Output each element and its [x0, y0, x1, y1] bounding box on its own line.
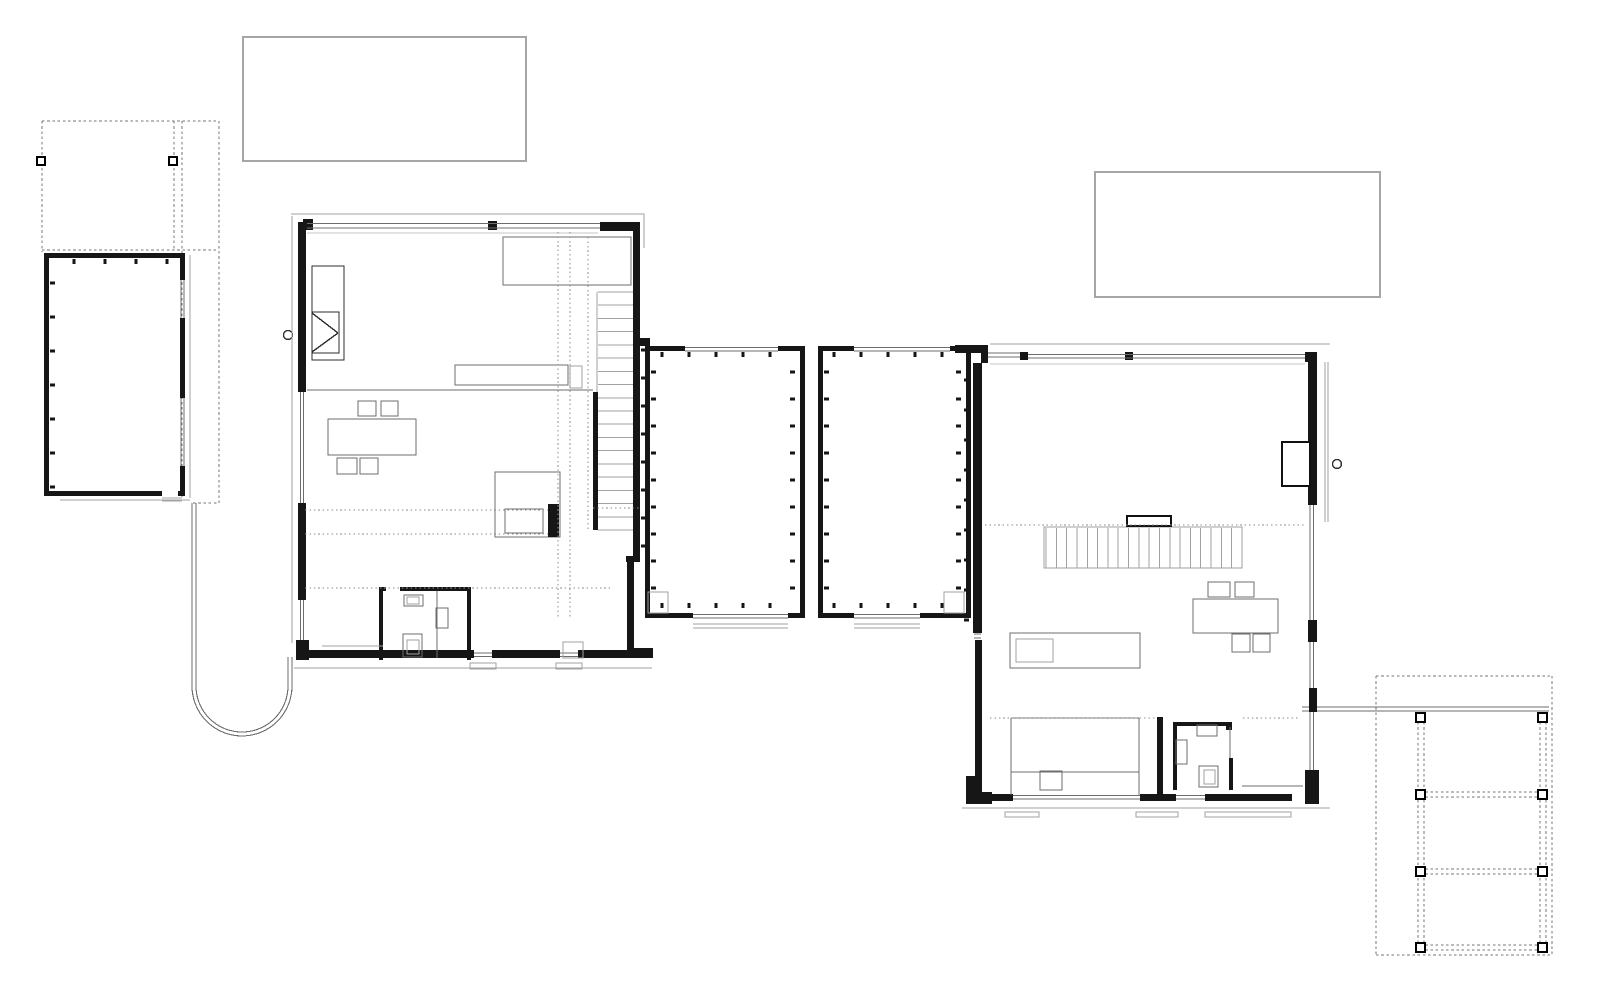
wall-tick — [651, 560, 656, 563]
wall-tick — [769, 352, 772, 357]
basin-icon — [1176, 740, 1187, 764]
wall-tick — [824, 425, 829, 428]
wall-tick — [964, 469, 969, 472]
wall-tick — [651, 587, 656, 590]
wall-tick — [790, 533, 795, 536]
carport-post — [37, 157, 45, 165]
sink-icon — [1016, 639, 1053, 662]
floor-mat — [944, 592, 964, 613]
wall-tick — [688, 352, 691, 357]
wardrobe — [1282, 442, 1310, 486]
wall-tick — [715, 603, 718, 608]
court-room-1 — [645, 346, 805, 628]
wall-tick — [790, 425, 795, 428]
wall-tick — [956, 560, 961, 563]
wall-tick — [790, 506, 795, 509]
dining-set-east — [1193, 582, 1278, 652]
bathroom-west — [379, 587, 471, 660]
curved-passage — [192, 503, 292, 736]
wall-tick — [651, 506, 656, 509]
bed-east-pillow — [1040, 771, 1062, 790]
wall-tick — [914, 352, 917, 357]
floor-plan-page: Ground floor plan — two-wing house with … — [0, 0, 1600, 986]
wall-tick — [166, 259, 169, 264]
door-handle-icon — [284, 331, 293, 340]
wall-tick — [73, 259, 76, 264]
carport-post — [1416, 713, 1425, 722]
wall-tick — [824, 452, 829, 455]
floor-mat — [648, 592, 668, 613]
carport-post — [1416, 867, 1425, 876]
basin-icon — [436, 608, 448, 628]
bedroom-east — [1011, 718, 1139, 795]
wall-tick — [964, 589, 969, 592]
chair — [337, 458, 357, 474]
east-stair — [1044, 516, 1242, 568]
wall-ticks — [50, 259, 969, 622]
wall-tick — [50, 452, 55, 455]
roof-outlines — [243, 37, 1380, 297]
court-room-2 — [818, 346, 971, 628]
desk-area — [495, 472, 560, 537]
wall-tick — [833, 352, 836, 357]
wall-tick — [790, 479, 795, 482]
wall-tick — [790, 587, 795, 590]
bathroom-east — [1173, 722, 1233, 790]
bed-west — [503, 237, 631, 285]
wall-tick — [964, 379, 969, 382]
wall-tick — [715, 352, 718, 357]
chair — [1208, 582, 1230, 597]
wall-tick — [790, 398, 795, 401]
wall-tick — [833, 603, 836, 608]
wall-tick — [641, 517, 646, 520]
wall-tick — [104, 259, 107, 264]
roof-outline-northeast — [1095, 172, 1380, 297]
house-west — [291, 214, 653, 669]
wall-tick — [790, 560, 795, 563]
wall-tick — [824, 371, 829, 374]
wall-tick — [641, 461, 646, 464]
west-stair — [570, 292, 633, 530]
wall-tick — [941, 603, 944, 608]
wall-tick — [964, 559, 969, 562]
wall-tick — [964, 499, 969, 502]
wall-tick — [824, 587, 829, 590]
wall-tick — [641, 489, 646, 492]
dining-set-west — [328, 401, 416, 474]
dining-table — [328, 419, 416, 455]
wall-tick — [956, 425, 961, 428]
floor-plan-canvas: Ground floor plan — two-wing house with … — [0, 0, 1600, 986]
garage — [44, 253, 293, 501]
wall-tick — [941, 352, 944, 357]
wall-tick — [964, 409, 969, 412]
chair — [381, 401, 398, 416]
wall-tick — [651, 398, 656, 401]
carport-se-posts — [1416, 713, 1547, 952]
connector — [645, 346, 971, 628]
house-east-windows — [974, 353, 1314, 799]
wall-tick — [651, 452, 656, 455]
wall-tick — [824, 479, 829, 482]
door-handle-icon — [1333, 460, 1342, 469]
wall-tick — [790, 371, 795, 374]
chair — [1253, 634, 1270, 652]
wall-tick — [651, 371, 656, 374]
carport-post — [1538, 867, 1547, 876]
wall-tick — [641, 349, 646, 352]
desk-chair — [505, 509, 543, 533]
wall-tick — [50, 282, 55, 285]
chair — [1235, 582, 1254, 597]
carport-post — [169, 157, 177, 165]
wall-tick — [50, 384, 55, 387]
wall-tick — [641, 433, 646, 436]
chair — [360, 458, 378, 474]
house-east-walls — [955, 345, 1319, 804]
wall-tick — [860, 352, 863, 357]
wall-tick — [135, 259, 138, 264]
wall-tick — [964, 439, 969, 442]
dashed-carport-lines — [42, 121, 1552, 955]
wall-tick — [956, 452, 961, 455]
wall-tick — [956, 533, 961, 536]
stair-niche — [570, 366, 582, 388]
pergola-beam — [1302, 707, 1549, 711]
carport-post — [1538, 943, 1547, 952]
wall-tick — [956, 398, 961, 401]
wall-tick — [661, 603, 664, 608]
kitchen-island — [1010, 633, 1140, 668]
wc-icon — [1197, 725, 1217, 736]
wall-tick — [824, 506, 829, 509]
west-stair-treads — [598, 292, 633, 530]
carport-post — [1416, 943, 1425, 952]
wall-tick — [956, 479, 961, 482]
wall-tick — [790, 452, 795, 455]
wall-tick — [964, 619, 969, 622]
wall-tick — [661, 352, 664, 357]
wall-tick — [641, 377, 646, 380]
wall-tick — [742, 603, 745, 608]
wall-tick — [824, 398, 829, 401]
wall-tick — [956, 587, 961, 590]
carport-post — [1538, 713, 1547, 722]
wall-tick — [769, 603, 772, 608]
wall-tick — [824, 533, 829, 536]
wall-tick — [651, 425, 656, 428]
wall-tick — [641, 545, 646, 548]
wall-tick — [50, 350, 55, 353]
wall-tick — [50, 418, 55, 421]
wall-tick — [887, 352, 890, 357]
fireplace — [312, 266, 344, 360]
wall-tick — [914, 603, 917, 608]
roof-outline-northwest — [243, 37, 526, 161]
wall-tick — [50, 486, 55, 489]
wall-tick — [50, 316, 55, 319]
chair — [1232, 634, 1250, 652]
wall-tick — [742, 352, 745, 357]
dining-table — [1193, 599, 1278, 633]
wall-tick — [641, 405, 646, 408]
wall-shelf — [455, 365, 568, 385]
carport-nw-posts — [37, 157, 177, 165]
wall-tick — [956, 371, 961, 374]
carport-post — [1538, 790, 1547, 799]
house-east-eaves — [962, 344, 1330, 817]
wall-tick — [887, 603, 890, 608]
wall-tick — [860, 603, 863, 608]
wall-tick — [824, 560, 829, 563]
wall-tick — [688, 603, 691, 608]
house-west-windows — [301, 224, 601, 657]
house-east — [955, 344, 1342, 817]
east-stair-treads — [1046, 528, 1242, 568]
wall-tick — [651, 533, 656, 536]
desk-partition — [548, 504, 559, 537]
wall-tick — [956, 506, 961, 509]
carport-post — [1416, 790, 1425, 799]
wall-tick — [964, 529, 969, 532]
chair — [358, 401, 376, 416]
wall-tick — [651, 479, 656, 482]
